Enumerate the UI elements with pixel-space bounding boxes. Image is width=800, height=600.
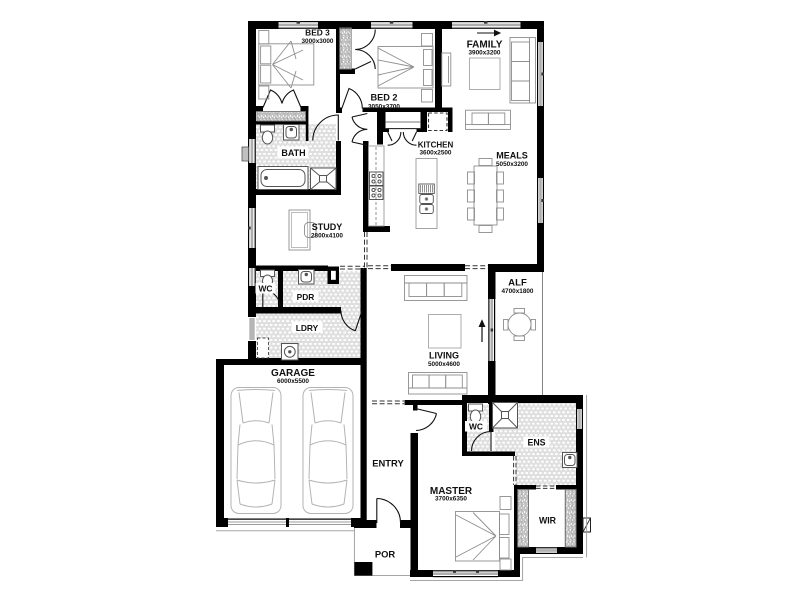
svg-text:LDRY: LDRY [296, 323, 319, 333]
svg-text:POR: POR [375, 548, 396, 559]
svg-text:WC: WC [259, 284, 273, 294]
svg-text:WC: WC [469, 422, 483, 432]
svg-text:ALF: ALF [508, 278, 527, 289]
svg-text:2800x4100: 2800x4100 [311, 233, 343, 240]
svg-text:WIR: WIR [539, 516, 557, 526]
svg-text:KITCHEN: KITCHEN [418, 140, 454, 149]
svg-text:STUDY: STUDY [312, 222, 343, 232]
svg-text:BED 2: BED 2 [370, 93, 397, 103]
svg-text:MEALS: MEALS [496, 151, 528, 161]
svg-text:4700x1800: 4700x1800 [502, 288, 534, 295]
svg-text:ENS: ENS [527, 438, 545, 448]
svg-text:ENTRY: ENTRY [372, 457, 404, 468]
svg-text:6000x5500: 6000x5500 [277, 378, 309, 385]
svg-text:3000x3000: 3000x3000 [302, 38, 334, 45]
svg-text:3900x3200: 3900x3200 [469, 50, 501, 57]
svg-text:BATH: BATH [281, 148, 305, 158]
svg-text:BED 3: BED 3 [305, 27, 330, 37]
svg-text:3050x3700: 3050x3700 [368, 103, 400, 110]
svg-text:3700x6350: 3700x6350 [435, 496, 467, 503]
svg-text:PDR: PDR [297, 292, 315, 302]
svg-text:5000x4600: 5000x4600 [428, 361, 460, 368]
svg-text:5050x3200: 5050x3200 [496, 161, 528, 168]
svg-text:3600x2500: 3600x2500 [420, 150, 452, 157]
svg-text:LIVING: LIVING [429, 351, 459, 361]
